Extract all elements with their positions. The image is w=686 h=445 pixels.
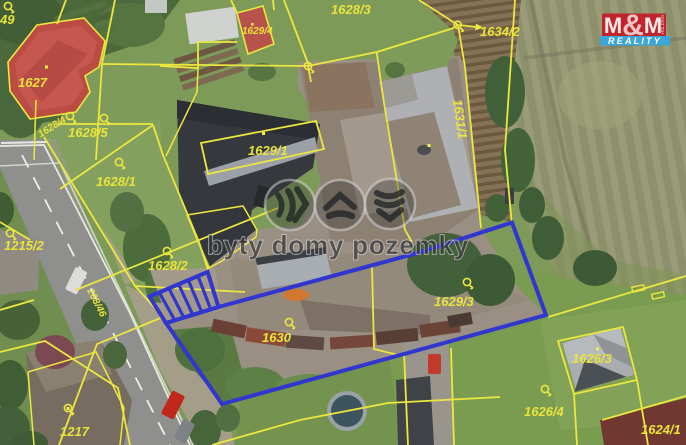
svg-text:byty domy pozemky: byty domy pozemky xyxy=(207,230,469,260)
svg-text:1628/3: 1628/3 xyxy=(331,2,372,17)
svg-text:1629/3: 1629/3 xyxy=(434,294,475,309)
svg-text:1626/4: 1626/4 xyxy=(524,404,565,419)
svg-text:1215/2: 1215/2 xyxy=(4,238,45,253)
svg-text:1624/1: 1624/1 xyxy=(641,422,681,437)
svg-text:49: 49 xyxy=(0,12,15,27)
svg-text:1628/1: 1628/1 xyxy=(96,174,136,189)
svg-text:1629/4: 1629/4 xyxy=(242,26,273,37)
svg-text:1626/3: 1626/3 xyxy=(572,351,613,366)
svg-text:1628/5: 1628/5 xyxy=(68,125,109,140)
svg-text:1628/2: 1628/2 xyxy=(148,258,189,273)
svg-text:1217: 1217 xyxy=(60,424,90,439)
svg-text:HOLDING: HOLDING xyxy=(660,15,665,34)
svg-text:1630: 1630 xyxy=(262,330,292,345)
svg-text:M: M xyxy=(604,13,622,38)
svg-text:1629/1: 1629/1 xyxy=(248,143,288,158)
svg-text:1627: 1627 xyxy=(18,75,48,90)
svg-text:REALITY: REALITY xyxy=(608,36,662,46)
svg-text:1634/2: 1634/2 xyxy=(480,24,521,39)
